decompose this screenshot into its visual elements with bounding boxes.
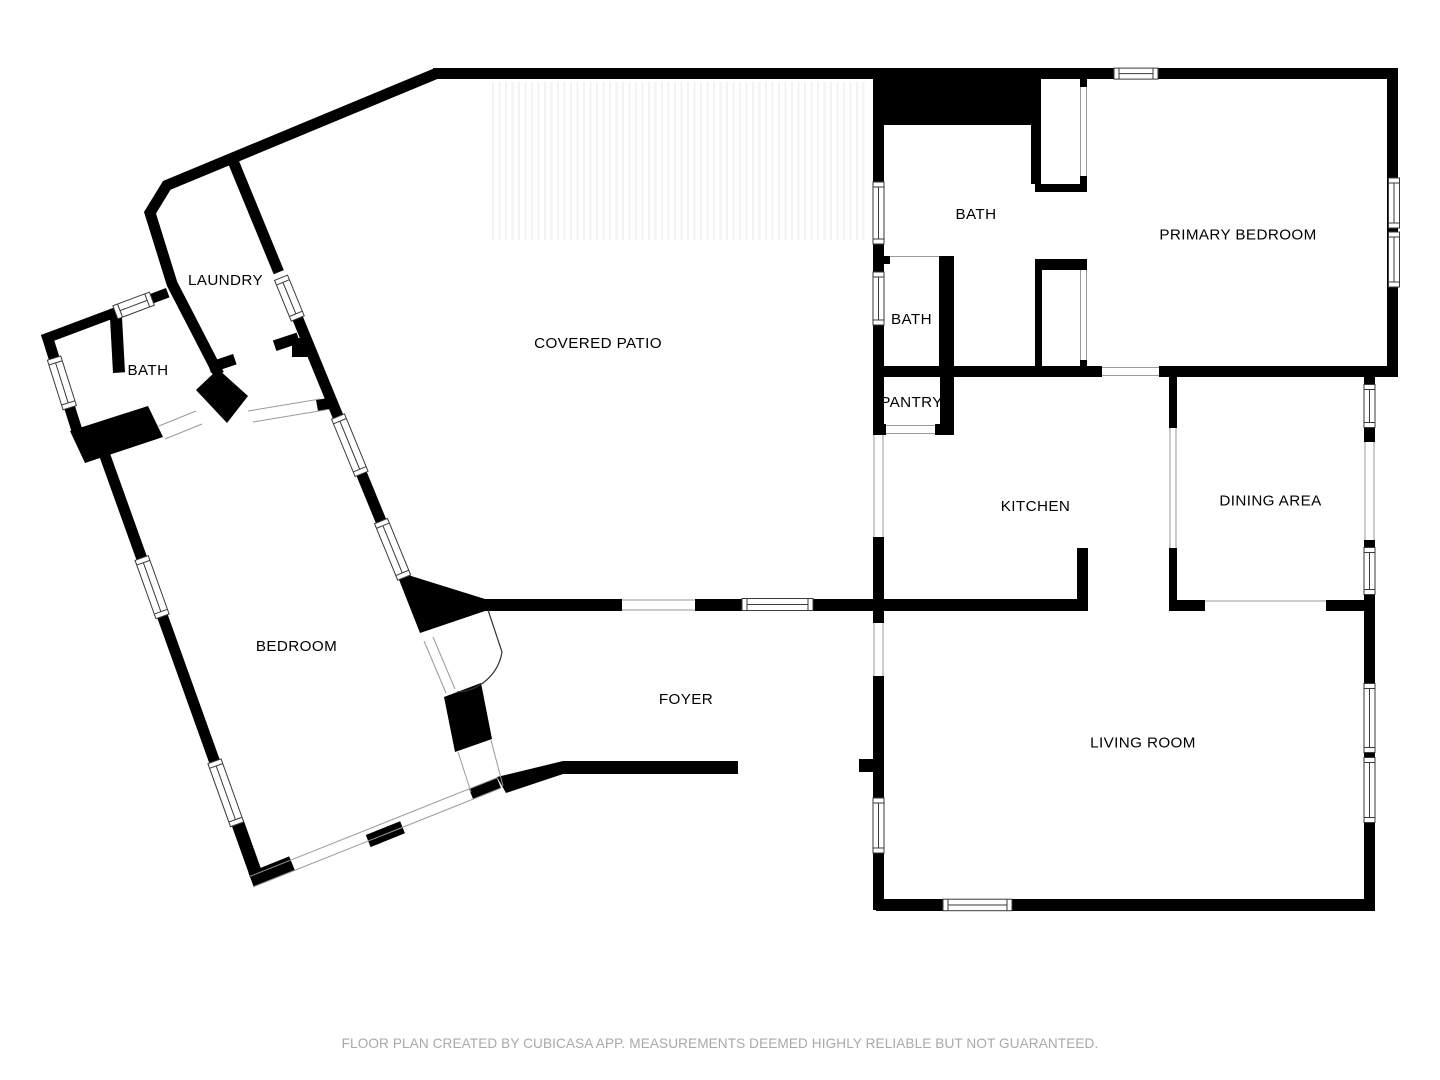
svg-text:BATH: BATH: [891, 311, 932, 328]
svg-text:FLOOR PLAN CREATED BY CUBICASA: FLOOR PLAN CREATED BY CUBICASA APP. MEAS…: [342, 1036, 1099, 1051]
svg-text:COVERED PATIO: COVERED PATIO: [534, 335, 662, 352]
svg-text:PANTRY: PANTRY: [880, 394, 943, 411]
svg-text:FOYER: FOYER: [659, 691, 713, 708]
svg-text:KITCHEN: KITCHEN: [1001, 498, 1070, 515]
svg-text:BATH: BATH: [956, 206, 997, 223]
svg-text:DINING AREA: DINING AREA: [1219, 493, 1322, 510]
svg-text:PRIMARY BEDROOM: PRIMARY BEDROOM: [1159, 227, 1316, 244]
svg-text:LAUNDRY: LAUNDRY: [188, 272, 263, 289]
svg-text:LIVING ROOM: LIVING ROOM: [1090, 735, 1196, 752]
svg-text:BEDROOM: BEDROOM: [256, 638, 337, 655]
svg-text:BATH: BATH: [128, 362, 169, 379]
